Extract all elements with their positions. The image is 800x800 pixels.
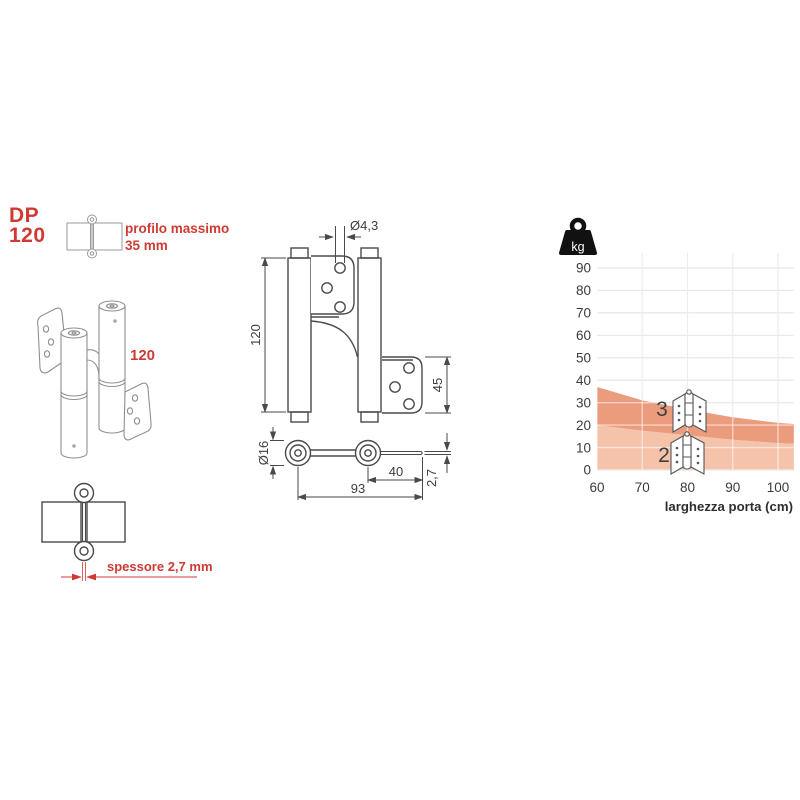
front-right-barrel-cap-bottom [361,412,378,422]
y-tick-label: 60 [576,328,591,343]
x-tick-label: 60 [589,480,604,495]
front-bottom-plate [382,357,422,413]
dim-thickness-label: 2,7 [424,469,439,487]
dim-knuckle-extensions [270,441,284,466]
y-tick-label: 50 [576,350,591,365]
y-tick-label: 30 [576,395,591,410]
x-tick-label: 90 [725,480,740,495]
front-view [288,248,422,422]
hinge-icon-3 [673,390,706,432]
thickness-left-leaf [42,502,81,542]
hinge-count-2-label: 2 [658,444,670,467]
thickness-extension-lines [83,562,86,581]
dim-plate-label: 45 [430,378,445,392]
y-tick-label: 20 [576,418,591,433]
dim-thickness-extensions [425,452,452,455]
profile-note-line2: 35 mm [125,237,229,254]
model-code-line1: DP [9,206,46,226]
dim-knuckle-label: Ø16 [256,441,271,466]
profile-note-line1: profilo massimo [125,220,229,237]
y-tick-label: 70 [576,306,591,321]
plan-knuckle-right [356,441,381,466]
profile-knuckle-top [88,215,97,224]
iso-right-barrel [99,306,125,433]
profile-knuckle-bottom [88,249,97,258]
front-hole-6 [404,399,414,409]
iso-height-label: 120 [130,347,155,364]
front-neck-curve [311,321,358,357]
front-right-barrel [358,258,381,412]
iso-right-plate [124,383,151,440]
front-left-barrel-cap-bottom [291,412,308,422]
front-hole-4 [404,363,414,373]
thickness-knuckle-bottom [75,542,94,561]
front-top-plate [311,256,354,314]
front-hole-5 [390,382,400,392]
front-hole-3 [335,302,345,312]
plan-thin-plate [380,452,422,455]
plan-knuckle-left [286,441,311,466]
thickness-dim-label: spessore 2,7 mm [107,559,213,574]
plan-leaf-bar [310,450,357,456]
dim-length-label: 93 [351,481,365,496]
load-chart: kg 010203040506070809060708090100 3 2 la… [548,205,800,525]
dim-hole-label: Ø4,3 [350,218,378,233]
thickness-right-leaf [87,502,125,542]
thickness-knuckle-top [75,484,94,503]
dim-offset-label: 40 [389,464,403,479]
iso-right-barrel-cap [99,301,125,311]
x-tick-label: 80 [680,480,695,495]
y-tick-label: 10 [576,440,591,455]
isometric-view [25,288,175,463]
front-left-barrel-cap-top [291,248,308,258]
pin-thickness-view: spessore 2,7 mm [35,478,225,593]
y-tick-label: 90 [576,261,591,276]
profile-note: profilo massimo 35 mm [125,220,229,254]
front-right-barrel-cap-top [361,248,378,258]
x-tick-label: 70 [635,480,650,495]
front-hole-2 [322,283,332,293]
plan-view [286,441,423,466]
model-code-line2: 120 [9,226,46,246]
hinge-count-3-label: 3 [656,398,668,421]
y-tick-label: 0 [583,463,591,478]
profile-top-view-icon [60,212,130,262]
front-left-barrel [288,258,311,412]
x-tick-label: 100 [767,480,790,495]
x-axis-title: larghezza porta (cm) [665,499,793,514]
dimension-drawing: 120 45 Ø4,3 Ø16 [250,210,460,510]
iso-left-barrel-cap [61,328,87,338]
weight-unit-label: kg [571,240,584,254]
dim-height-label: 120 [248,324,263,346]
y-tick-label: 80 [576,283,591,298]
y-tick-label: 40 [576,373,591,388]
plan-view-dimensions: Ø16 40 93 2,7 [256,427,451,500]
profile-left-leaf [67,223,91,250]
front-hole-1 [335,263,345,273]
profile-right-leaf [94,223,123,250]
weight-icon: kg [561,220,595,254]
model-code: DP 120 [9,206,46,246]
